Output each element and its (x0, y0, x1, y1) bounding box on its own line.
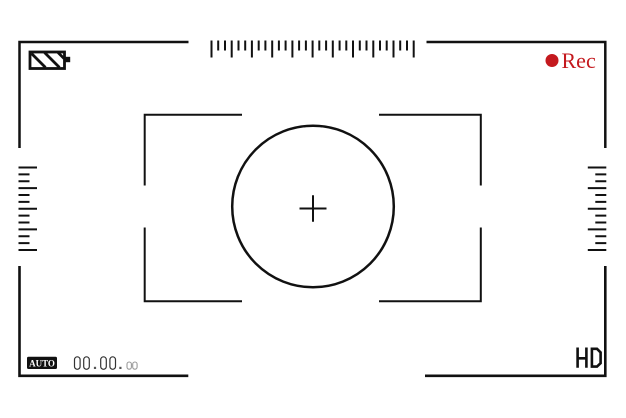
svg-text:Rec: Rec (562, 48, 596, 73)
svg-text:AUTO: AUTO (29, 358, 55, 368)
